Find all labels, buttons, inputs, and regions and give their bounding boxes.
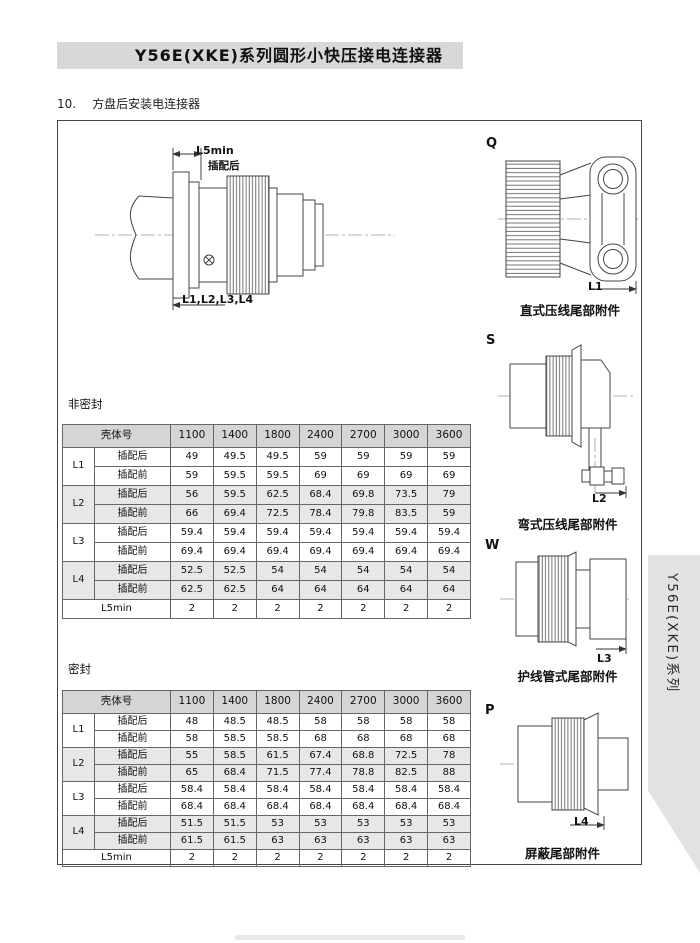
dimension-value: 2 xyxy=(428,850,471,867)
mating-state-label: 插配后 xyxy=(95,714,171,731)
table-label-sealed: 密封 xyxy=(68,661,91,677)
accessory-drawing-q xyxy=(498,155,638,295)
main-connector-drawing xyxy=(95,140,395,315)
dimension-value: 62.5 xyxy=(256,486,299,505)
dimension-value: 68.4 xyxy=(342,799,385,816)
shell-size: 3000 xyxy=(385,691,428,714)
dimension-value: 59.4 xyxy=(299,524,342,543)
mating-state-label: 插配前 xyxy=(95,799,171,816)
dimension-value: 58.4 xyxy=(342,782,385,799)
table-row: L3插配后58.458.458.458.458.458.458.4 xyxy=(63,782,471,799)
table-row: L1插配后4949.549.559595959 xyxy=(63,448,471,467)
dimension-value: 2 xyxy=(171,850,214,867)
dimension-value: 53 xyxy=(299,816,342,833)
dimension-value: 59 xyxy=(428,505,471,524)
dimension-value: 54 xyxy=(342,562,385,581)
dimension-value: 49 xyxy=(171,448,214,467)
table-row: 插配前68.468.468.468.468.468.468.4 xyxy=(63,799,471,816)
dim-label-l1: L1 xyxy=(588,280,603,293)
table-row: 插配前6669.472.578.479.883.559 xyxy=(63,505,471,524)
dimension-value: 2 xyxy=(428,600,471,619)
dimension-value: 69.8 xyxy=(342,486,385,505)
dimension-value: 2 xyxy=(342,600,385,619)
dimension-value: 88 xyxy=(428,765,471,782)
mating-state-label: 插配前 xyxy=(95,731,171,748)
mating-state-label: 插配前 xyxy=(95,505,171,524)
dimension-value: 69 xyxy=(342,467,385,486)
accessory-drawing-w xyxy=(500,550,632,660)
dimension-name: L1 xyxy=(63,714,95,748)
dimension-value: 61.5 xyxy=(256,748,299,765)
dimension-value: 68.4 xyxy=(385,799,428,816)
dimension-value: 72.5 xyxy=(256,505,299,524)
dimension-value: 2 xyxy=(299,600,342,619)
accessory-letter-p: P xyxy=(485,703,495,718)
dimension-value: 69.4 xyxy=(213,543,256,562)
shell-size-header: 壳体号 xyxy=(63,691,171,714)
dimension-value: 67.4 xyxy=(299,748,342,765)
table-row: L2插配后5558.561.567.468.872.578 xyxy=(63,748,471,765)
dimension-value: 53 xyxy=(342,816,385,833)
dimension-value: 48 xyxy=(171,714,214,731)
mating-state-label: 插配后 xyxy=(95,524,171,543)
dim-label-l3: L3 xyxy=(597,652,612,665)
side-tab-label: Y56E(XKE)系列 xyxy=(664,573,684,693)
mating-state-label: 插配后 xyxy=(95,782,171,799)
page-title: Y56E(XKE)系列圆形小快压接电连接器 xyxy=(57,42,463,69)
table-row: L4插配后51.551.55353535353 xyxy=(63,816,471,833)
dimension-value: 73.5 xyxy=(385,486,428,505)
dimension-value: 58.4 xyxy=(256,782,299,799)
dimension-value: 2 xyxy=(256,850,299,867)
dimension-value: 79 xyxy=(428,486,471,505)
mate-after-label: 插配后 xyxy=(208,158,240,173)
accessory-letter-w: W xyxy=(485,538,499,553)
dimension-value: 58 xyxy=(299,714,342,731)
dimension-value: 54 xyxy=(385,562,428,581)
dimension-value: 69.4 xyxy=(428,543,471,562)
dimension-value: 54 xyxy=(428,562,471,581)
dimension-value: 59.4 xyxy=(342,524,385,543)
dimension-value: 62.5 xyxy=(213,581,256,600)
dimension-value: 54 xyxy=(256,562,299,581)
dimension-value: 56 xyxy=(171,486,214,505)
dimension-name: L2 xyxy=(63,748,95,782)
dimension-value: 59 xyxy=(299,448,342,467)
shell-size: 2700 xyxy=(342,425,385,448)
dimension-value: 64 xyxy=(342,581,385,600)
mating-state-label: 插配前 xyxy=(95,543,171,562)
dimension-value: 63 xyxy=(342,833,385,850)
dimension-value: 64 xyxy=(299,581,342,600)
footer-strip xyxy=(235,935,465,940)
section-title: 方盘后安装电连接器 xyxy=(92,97,200,111)
dimension-value: 69 xyxy=(428,467,471,486)
dimension-value: 69 xyxy=(385,467,428,486)
dimension-value: 2 xyxy=(342,850,385,867)
shell-size: 2400 xyxy=(299,691,342,714)
dimension-value: 68 xyxy=(342,731,385,748)
accessory-caption-p: 屏蔽尾部附件 xyxy=(495,843,630,862)
dimension-value: 59 xyxy=(342,448,385,467)
mating-state-label: 插配后 xyxy=(95,562,171,581)
table-row: L3插配后59.459.459.459.459.459.459.4 xyxy=(63,524,471,543)
dimension-value: 53 xyxy=(385,816,428,833)
mating-state-label: 插配前 xyxy=(95,467,171,486)
dimension-value: 68 xyxy=(299,731,342,748)
dimension-value: 58.4 xyxy=(213,782,256,799)
dimension-name: L3 xyxy=(63,524,95,562)
dimension-value: 59.4 xyxy=(385,524,428,543)
shell-size: 1800 xyxy=(256,691,299,714)
dimension-value: 2 xyxy=(256,600,299,619)
dimension-value: 58 xyxy=(342,714,385,731)
table-row: 插配前62.562.56464646464 xyxy=(63,581,471,600)
dimension-value: 68 xyxy=(385,731,428,748)
dimension-value: 68.4 xyxy=(213,765,256,782)
dimension-value: 59 xyxy=(385,448,428,467)
mating-state-label: 插配前 xyxy=(95,581,171,600)
dimension-value: 63 xyxy=(385,833,428,850)
dimension-value: 59.4 xyxy=(171,524,214,543)
dimension-value: 68.4 xyxy=(299,486,342,505)
datasheet-page: { "page": { "title": "Y56E(XKE)系列圆形小快压接电… xyxy=(0,0,700,943)
dimension-value: 52.5 xyxy=(171,562,214,581)
dimension-value: 68.8 xyxy=(342,748,385,765)
table-row: 插配前5959.559.569696969 xyxy=(63,467,471,486)
dimension-value: 69.4 xyxy=(299,543,342,562)
dimension-value: 58 xyxy=(171,731,214,748)
footer-label: L5min xyxy=(63,850,171,867)
accessory-caption-q: 直式压线尾部附件 xyxy=(500,300,640,319)
shell-size: 3600 xyxy=(428,691,471,714)
accessory-letter-q: Q xyxy=(486,136,497,151)
accessory-drawing-p xyxy=(500,712,632,834)
dimension-value: 71.5 xyxy=(256,765,299,782)
dimension-value: 51.5 xyxy=(171,816,214,833)
mating-state-label: 插配后 xyxy=(95,748,171,765)
dimension-value: 2 xyxy=(299,850,342,867)
accessory-letter-s: S xyxy=(486,333,495,348)
dimension-value: 59 xyxy=(428,448,471,467)
dim-label-l2: L2 xyxy=(592,492,607,505)
dimension-value: 64 xyxy=(385,581,428,600)
dimension-value: 63 xyxy=(299,833,342,850)
dimension-value: 59.5 xyxy=(213,467,256,486)
dimension-value: 51.5 xyxy=(213,816,256,833)
dimension-value: 53 xyxy=(256,816,299,833)
dimension-value: 63 xyxy=(256,833,299,850)
dimension-table-unsealed: 壳体号1100140018002400270030003600L1插配后4949… xyxy=(62,424,471,619)
dimension-value: 78.4 xyxy=(299,505,342,524)
dimension-value: 58.4 xyxy=(385,782,428,799)
dimension-value: 68.4 xyxy=(299,799,342,816)
mating-state-label: 插配前 xyxy=(95,833,171,850)
dimension-name: L4 xyxy=(63,816,95,850)
dimension-value: 58.5 xyxy=(213,731,256,748)
section-heading: 10.方盘后安装电连接器 xyxy=(57,95,200,112)
table-row: 插配前5858.558.568686868 xyxy=(63,731,471,748)
dimension-value: 66 xyxy=(171,505,214,524)
dimension-value: 59.5 xyxy=(213,486,256,505)
dimension-value: 82.5 xyxy=(385,765,428,782)
dimension-value: 63 xyxy=(428,833,471,850)
dimension-value: 68.4 xyxy=(256,799,299,816)
dimension-value: 58.4 xyxy=(299,782,342,799)
dimension-value: 59.4 xyxy=(428,524,471,543)
dimension-value: 62.5 xyxy=(171,581,214,600)
footer-label: L5min xyxy=(63,600,171,619)
dimension-value: 2 xyxy=(213,600,256,619)
dimension-value: 69.4 xyxy=(342,543,385,562)
table-row: 插配前6568.471.577.478.882.588 xyxy=(63,765,471,782)
table-row: 插配前69.469.469.469.469.469.469.4 xyxy=(63,543,471,562)
dimension-value: 48.5 xyxy=(213,714,256,731)
dimension-value: 69.4 xyxy=(213,505,256,524)
dimension-name: L1 xyxy=(63,448,95,486)
dimension-value: 58.5 xyxy=(213,748,256,765)
dimension-value: 65 xyxy=(171,765,214,782)
dimension-value: 49.5 xyxy=(213,448,256,467)
table-row: 插配前61.561.56363636363 xyxy=(63,833,471,850)
shell-size-header: 壳体号 xyxy=(63,425,171,448)
dimension-value: 61.5 xyxy=(171,833,214,850)
dimension-value: 64 xyxy=(428,581,471,600)
dimension-value: 2 xyxy=(213,850,256,867)
dim-label-l5min: L5min xyxy=(196,144,234,157)
accessory-drawing-s xyxy=(498,340,633,505)
dimension-value: 54 xyxy=(299,562,342,581)
dimension-name: L3 xyxy=(63,782,95,816)
dimension-value: 58.4 xyxy=(428,782,471,799)
dimension-table-sealed: 壳体号1100140018002400270030003600L1插配后4848… xyxy=(62,690,471,867)
dimension-value: 58.5 xyxy=(256,731,299,748)
shell-size: 2400 xyxy=(299,425,342,448)
dimension-value: 48.5 xyxy=(256,714,299,731)
shell-size: 1100 xyxy=(171,425,214,448)
table-label-unsealed: 非密封 xyxy=(68,396,103,412)
dimension-value: 49.5 xyxy=(256,448,299,467)
dimension-value: 2 xyxy=(385,600,428,619)
dimension-value: 58 xyxy=(428,714,471,731)
mating-state-label: 插配后 xyxy=(95,486,171,505)
title-band: Y56E(XKE)系列圆形小快压接电连接器 xyxy=(57,42,463,69)
dimension-name: L4 xyxy=(63,562,95,600)
dimension-value: 58 xyxy=(385,714,428,731)
dimension-value: 61.5 xyxy=(213,833,256,850)
dimension-value: 78 xyxy=(428,748,471,765)
shell-size: 3600 xyxy=(428,425,471,448)
dimension-value: 83.5 xyxy=(385,505,428,524)
dimension-value: 59.4 xyxy=(256,524,299,543)
dim-label-l4: L4 xyxy=(574,815,589,828)
dimension-name: L2 xyxy=(63,486,95,524)
dimension-value: 58.4 xyxy=(171,782,214,799)
shell-size: 2700 xyxy=(342,691,385,714)
mating-state-label: 插配后 xyxy=(95,448,171,467)
dimension-value: 77.4 xyxy=(299,765,342,782)
table-footer-row: L5min2222222 xyxy=(63,600,471,619)
dimension-value: 2 xyxy=(171,600,214,619)
dimension-value: 52.5 xyxy=(213,562,256,581)
dimension-value: 69.4 xyxy=(385,543,428,562)
dimension-value: 53 xyxy=(428,816,471,833)
accessory-caption-w: 护线管式尾部附件 xyxy=(495,666,640,685)
table-row: L1插配后4848.548.558585858 xyxy=(63,714,471,731)
dimension-value: 69.4 xyxy=(171,543,214,562)
dimension-value: 68.4 xyxy=(213,799,256,816)
mating-state-label: 插配前 xyxy=(95,765,171,782)
mating-state-label: 插配后 xyxy=(95,816,171,833)
shell-size: 1400 xyxy=(213,425,256,448)
dimension-value: 68.4 xyxy=(171,799,214,816)
table-row: L2插配后5659.562.568.469.873.579 xyxy=(63,486,471,505)
shell-size: 1400 xyxy=(213,691,256,714)
dimension-value: 68 xyxy=(428,731,471,748)
shell-size: 1800 xyxy=(256,425,299,448)
dimension-value: 64 xyxy=(256,581,299,600)
accessory-caption-s: 弯式压线尾部附件 xyxy=(495,514,640,533)
dimension-value: 68.4 xyxy=(428,799,471,816)
side-tab: Y56E(XKE)系列 xyxy=(648,555,700,873)
shell-size: 1100 xyxy=(171,691,214,714)
dimension-value: 55 xyxy=(171,748,214,765)
dimension-value: 79.8 xyxy=(342,505,385,524)
dimension-value: 2 xyxy=(385,850,428,867)
dimension-value: 69 xyxy=(299,467,342,486)
table-row: L4插配后52.552.55454545454 xyxy=(63,562,471,581)
dimension-value: 59 xyxy=(171,467,214,486)
shell-size: 3000 xyxy=(385,425,428,448)
dimension-value: 69.4 xyxy=(256,543,299,562)
section-number: 10. xyxy=(57,97,76,111)
dimension-value: 59.5 xyxy=(256,467,299,486)
dimension-value: 72.5 xyxy=(385,748,428,765)
dimension-value: 78.8 xyxy=(342,765,385,782)
table-footer-row: L5min2222222 xyxy=(63,850,471,867)
dim-label-l1-l4: L1,L2,L3,L4 xyxy=(182,293,253,306)
dimension-value: 59.4 xyxy=(213,524,256,543)
